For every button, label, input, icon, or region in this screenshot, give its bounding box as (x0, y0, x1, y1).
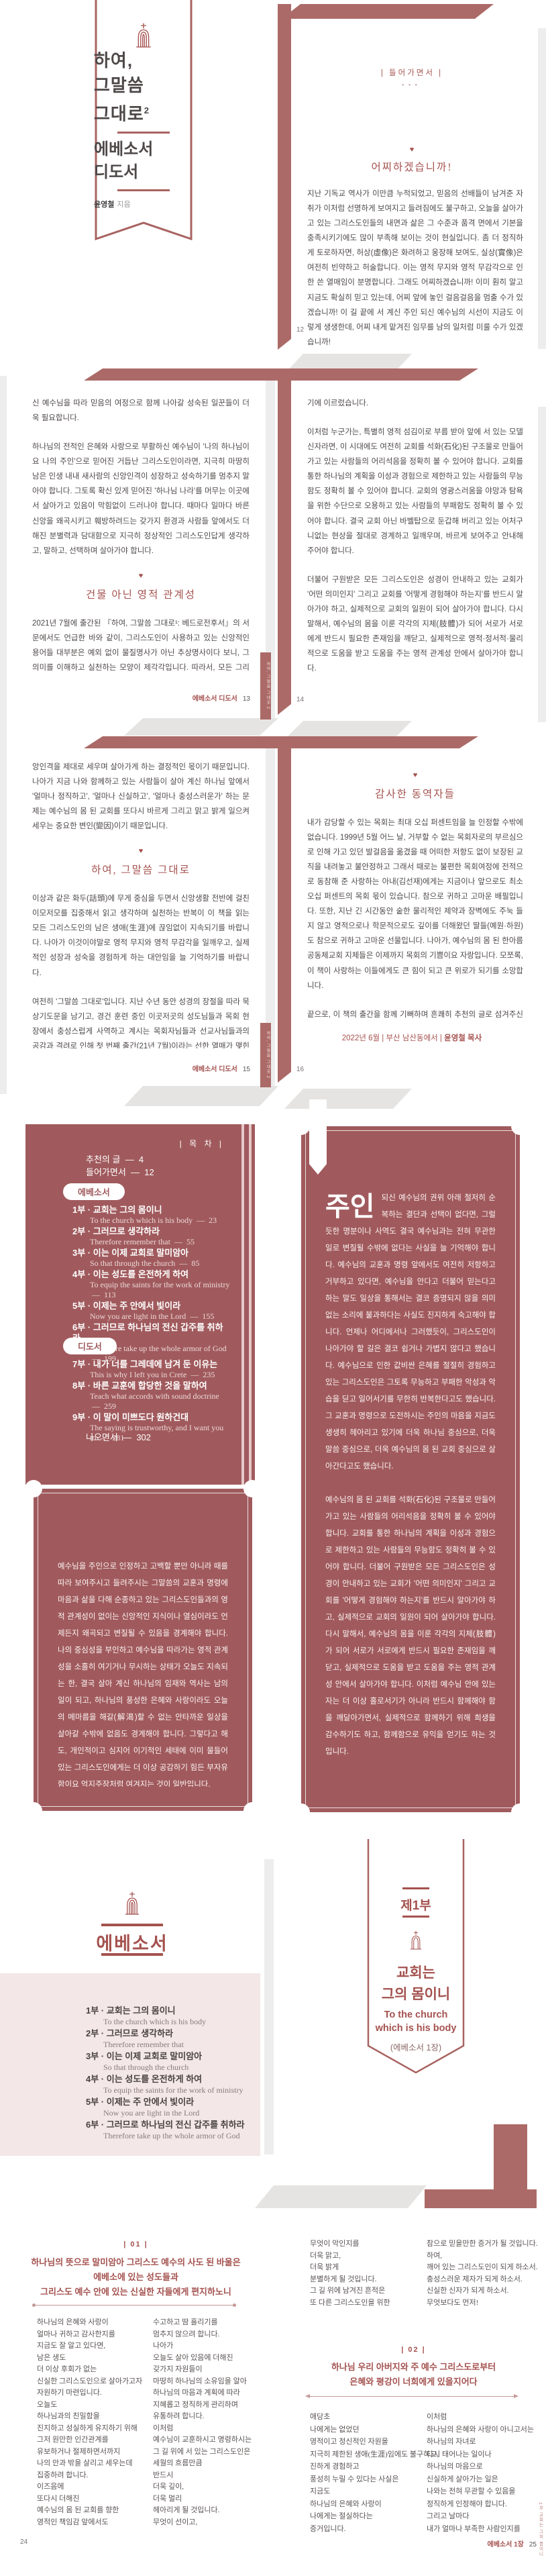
paragraph: 이상과 같은 화두(話頭)에 무게 중심을 두면서 신앙생활 전반에 걸친 이모… (32, 891, 250, 980)
meditation-line: 하나님의 자녀로 (427, 2436, 534, 2448)
verse-divider-arrow (308, 2396, 516, 2397)
toc-front-item: 들어가면서 — 12 (86, 1167, 154, 1178)
meditation-line: 집중하려 합니다. (37, 2470, 142, 2482)
title-bar (101, 1924, 163, 1926)
signature-name: 윤영철 목사 (444, 1034, 482, 1042)
page-number: 12 (296, 326, 304, 334)
toc-entry-en: This is why I left you in Crete — 235 (72, 1370, 231, 1380)
meditation-line: 나와는 전혀 무관할 수 있음을 (427, 2485, 534, 2498)
meditation-line: 얼마나 귀하고 감사한지를 (37, 2329, 142, 2341)
toc-front-item: 추천의 글 — 4 (86, 1154, 154, 1165)
heart-ornament-icon (32, 848, 250, 855)
verse-line: 은혜와 평강이 너희에게 있을지어다 (294, 2375, 533, 2389)
meditation-line: 지금도 잘 알고 있다면, (37, 2340, 142, 2352)
paragraph: 하나님의 전적인 은혜와 사랑으로 부활하신 예수님이 '나의 하나님이요 나의… (32, 440, 250, 558)
toc-entry-ko: 2부 · 그러므로 생각하라 (72, 1226, 231, 1237)
meditation-line: 지혜롭고 정직하게 관리하며 (153, 2399, 252, 2412)
part-title: 교회는그의 몸이니 (367, 1963, 465, 2005)
toc-entry-en: To equip the saints for the work of mini… (72, 1280, 231, 1300)
meditation-line: 이즈음에 (37, 2481, 142, 2493)
section-label: | 들어가면서 | (278, 67, 546, 78)
paragraph: 기에 이르렀습니다. (307, 396, 523, 411)
title-line: 그대로2 (94, 98, 193, 127)
excerpt-text: 주인되신 예수님의 권위 아래 철저히 순복하는 결단과 선택이 없다면, 그럴… (325, 1190, 496, 1781)
toc-entry-ko: 9부 · 이 말이 미쁘도다 원하건대 (72, 1412, 231, 1423)
chapter-side-tab: 하여, 그말씀 그대로 2 (260, 1023, 271, 1087)
corner-band (425, 2189, 537, 2208)
corner-scoop (25, 1480, 42, 1497)
meditation-line: 나에게는 절실하다는 (310, 2510, 439, 2523)
running-footer: 에베소서 디도서13 (193, 693, 250, 703)
verse-line: 하나님의 뜻으로 말미암아 그리스도 예수의 사도 된 바울은 (20, 2255, 252, 2270)
chapter-side-tab: 하여, 그말씀 그대로 2 (260, 652, 271, 720)
toc-outro: 나오면서 — 302 (86, 1430, 151, 1443)
meditation-line: 그저 원만한 인간관계를 (37, 2434, 142, 2446)
page-number: 25 (529, 2541, 537, 2548)
lead-word: 주인 (325, 1191, 375, 1222)
meditation-line: 더욱 깊이, (153, 2481, 252, 2493)
footer-title: 에베소서 디도서 (193, 695, 237, 703)
paragraph: 내가 감당할 수 있는 목회는 최대 오십 퍼센트임을 늘 인정할 수밖에 없습… (307, 815, 523, 993)
section-heading: 하여, 그말씀 그대로 (91, 864, 190, 876)
church-icon (0, 1891, 264, 1919)
footer-title: 에베소서 1장 (488, 2541, 524, 2548)
title-line: 하여, (94, 48, 193, 73)
book-preview-canvas: 하여, 그말씀 그대로2 에베소서 디도서 윤영철지음 12 | 들어가면서 |… (0, 0, 546, 2576)
meditation-line: 나아가 (153, 2340, 252, 2352)
page-12-intro: 12 | 들어가면서 | 어찌하겠습니까! 지난 기독교 역사가 이만큼 누적되… (278, 0, 546, 366)
section-heading: 어찌하겠습니까! (372, 162, 453, 173)
meditation-line: 신실한 그리스도인으로 살아가고자 (37, 2376, 142, 2388)
meditation-line: 헤아리게 될 것입니다. (153, 2505, 252, 2517)
paragraph: 여전히 '그말씀 그대로'입니다. 지난 수년 동안 성경의 장절을 따라 묵상… (32, 995, 250, 1048)
label-bar (402, 1887, 429, 1889)
meditation-line: 하나님과의 친밀함을 (37, 2411, 142, 2423)
meditation-line: 나에게는 없었던 (310, 2424, 439, 2436)
meditation-line: 무엇이 선이고, (153, 2517, 252, 2529)
page-13: 신 예수님을 따라 믿음의 여정으로 함께 나아갈 성숙된 일꾼들이 더욱 필요… (0, 368, 273, 736)
toc-section-badge-ephesians: 에베소서 (63, 1183, 125, 1200)
meditation-line: 예수님의 몸 된 교회를 향한 (37, 2505, 142, 2517)
author-suffix: 지음 (117, 201, 130, 209)
toc-page: | 목 차 | 추천의 글 — 4 들어가면서 — 12 에베소서 1부 · 교… (25, 1124, 241, 1485)
toc-edge-stripes (241, 1124, 255, 1485)
scripture-ref: (에베소서 1장) (367, 2040, 465, 2053)
page-number: 13 (243, 695, 250, 703)
heading-block: 건물 아닌 영적 관계성 (32, 573, 250, 605)
heart-ornament-icon (278, 146, 546, 154)
running-footer: 에베소서 1장25 (488, 2538, 537, 2548)
meditation-line: 다시 태어나는 일이나 (427, 2448, 534, 2461)
meditation-line: 예수님이 교훈하시고 명령하시는 (153, 2434, 252, 2446)
corner-scoop (511, 1118, 529, 1135)
meditation-line: 증거입니다. (310, 2523, 439, 2536)
page-number: 16 (296, 1066, 304, 1073)
paragraph: 신 예수님을 따라 믿음의 여정으로 함께 나아갈 성숙된 일꾼들이 더욱 필요… (32, 396, 250, 426)
excerpt-card-master: 주인되신 예수님의 권위 아래 철저히 순복하는 결단과 선택이 없다면, 그럴… (301, 1126, 520, 1812)
gutter-band (278, 736, 291, 1083)
paragraph: 지난 기독교 역사가 이만큼 누적되었고, 믿음의 선배들이 남겨준 자취가 이… (307, 187, 523, 350)
toc-entry-ko: 8부 · 바른 교훈에 합당한 것을 말하여 (72, 1381, 231, 1391)
title-divider (117, 189, 170, 191)
subtitle-line: 디도서 (94, 161, 193, 184)
body-text: 지난 기독교 역사가 이만큼 누적되었고, 믿음의 선배들이 남겨준 자취가 이… (307, 187, 523, 358)
paragraph: 더불어 구원받은 모든 그리스도인은 성경이 안내하고 있는 교회가 '어떤 의… (307, 573, 523, 677)
verse-divider (34, 2305, 235, 2306)
meditation-line: 오늘도 살아 있음에 더해진 (153, 2352, 252, 2365)
ephesians-divider-page: 에베소서 1부 · 교회는 그의 몸이니To the church which … (0, 1859, 264, 2235)
running-footer: 에베소서 디도서15 (193, 1063, 250, 1073)
heart-ornament-icon (32, 573, 250, 580)
verse-text: 하나님 우리 아버지와 주 예수 그리스도로부터은혜와 평강이 너희에게 있을지… (294, 2360, 533, 2389)
part-entry: 6부 · 그러므로 하나님의 전신 갑주를 취하라Therefore take … (86, 2120, 245, 2142)
part-label: 제1부 (367, 1895, 465, 1914)
verse-number-label: | 02 | (294, 2346, 533, 2354)
paragraph: 끝으로, 이 책의 출간을 함께 기뻐하며 흔쾌히 추천의 글로 섬겨주신 김주… (307, 1007, 523, 1023)
church-icon (367, 1930, 465, 1954)
excerpt-card-relationship: 예수님을 주인으로 인정하고 고백할 뿐만 아니라 때를 따라 보여주시고 들려… (34, 1489, 252, 1811)
meditation-line: 나의 안과 밖을 살리고 세우는데 (37, 2458, 142, 2470)
page-number: 14 (296, 696, 304, 703)
meditation-line: 이처럼 (153, 2423, 252, 2435)
cover-page: 하여, 그말씀 그대로2 에베소서 디도서 윤영철지음 (0, 0, 268, 366)
body-text: 앙인격을 제대로 세우며 살아가게 하는 결정적인 몫이기 때문입니다. 나아가… (32, 760, 250, 1048)
footer-title: 에베소서 디도서 (193, 1066, 237, 1073)
subtitle-line: 에베소서 (94, 138, 193, 161)
gutter-band (278, 368, 291, 715)
meditation-line: 하나님의 은혜와 사랑이 (310, 2498, 439, 2511)
toc-front-items: 추천의 글 — 4 들어가면서 — 12 (86, 1154, 154, 1179)
meditation-col1: 하나님의 은혜와 사랑이얼마나 귀하고 감사한지를지금도 잘 알고 있다면,남은… (37, 2317, 142, 2528)
meditation-line: 애당초 (310, 2411, 439, 2424)
meditation-col1: 애당초나에게는 없었던영적이고 정신적인 자원을지극히 제한된 생애(生涯)임에… (310, 2411, 439, 2535)
heading-block: 하여, 그말씀 그대로 (32, 848, 250, 881)
meditation-line: 유보하거나 절제하면서까지 (37, 2446, 142, 2459)
meditation-line: 그 길 위에 서 있는 그리스도인은 (153, 2446, 252, 2459)
meditation-line: 진지하고 성실하게 유지하기 위해 (37, 2423, 142, 2435)
meditation-line: 내가 얼마나 부족한 사람인지를 (427, 2523, 534, 2536)
part1-title-page: 제1부 교회는그의 몸이니 To the churchwhich is his … (278, 1839, 546, 2240)
page-15: 앙인격을 제대로 세우며 살아가게 하는 결정적인 몫이기 때문입니다. 나아가… (0, 736, 273, 1103)
meditation-line: 남은 생도 (37, 2352, 142, 2365)
verse-line: 그리스도 예수 안에 있는 신실한 자들에게 편지하노니 (20, 2285, 252, 2299)
meditation-col2: 이처럼하나님의 은혜와 사랑이 아니고서는하나님의 자녀로다시 태어나는 일이나… (427, 2411, 534, 2535)
toc-section-badge-titus: 디도서 (63, 1338, 117, 1354)
corner-scoop (25, 1802, 42, 1820)
church-icon (94, 23, 193, 52)
toc-entry-ko: 1부 · 교회는 그의 몸이니 (72, 1205, 231, 1216)
signature-place: 2022년 6월 | 부산 남산동에서 | (342, 1034, 442, 1042)
part-title-en: To the churchwhich is his body (367, 2008, 465, 2035)
meditation-line: 세월의 흐름만큼 (153, 2458, 252, 2470)
part-entry: 3부 · 이는 이제 교회로 말미암아So that through the c… (86, 2051, 245, 2073)
body-text: 감사한 동역자들 내가 감당할 수 있는 목회는 최대 오십 퍼센트임을 늘 인… (307, 768, 523, 1023)
verse-line: 하나님 우리 아버지와 주 예수 그리스도로부터 (294, 2360, 533, 2375)
corner-scoop (243, 1802, 261, 1820)
meditation-line: 하나님의 마음과 계획에 따라 (153, 2387, 252, 2399)
body-text: 신 예수님을 따라 믿음의 여정으로 함께 나아갈 성숙된 일꾼들이 더욱 필요… (32, 396, 250, 678)
meditation-line: 영적이고 정신적인 자원을 (310, 2436, 439, 2448)
heading-block: 어찌하겠습니까! (278, 146, 546, 174)
title-superscript: 2 (144, 105, 150, 115)
author-credit: 윤영철지음 (94, 199, 193, 209)
corner-scoop (292, 1118, 310, 1135)
label-bar (402, 1916, 429, 1918)
title-bar (101, 1953, 163, 1956)
part-entry: 4부 · 이는 성도를 온전하게 하여To equip the saints f… (86, 2074, 245, 2096)
toc-entry-ko: 3부 · 이는 이제 교회로 말미암아 (72, 1248, 231, 1258)
meditation-line: 수고하고 땀 흘리기를 (153, 2317, 252, 2329)
meditation-line: 그리고 날마다 (427, 2510, 534, 2523)
part-ribbon: 제1부 교회는그의 몸이니 To the churchwhich is his … (367, 1839, 465, 2075)
part-section-title: 에베소서 (0, 1929, 264, 1955)
heading-block: 감사한 동역자들 (307, 772, 523, 805)
meditation-line: 하나님의 은혜와 사랑이 (37, 2317, 142, 2329)
page-24-meditation: | 01 | 하나님의 뜻으로 말미암아 그리스도 예수의 사도 된 바울은에베… (0, 2235, 273, 2576)
meditation-line: 오늘도 (37, 2399, 142, 2412)
part-entry: 5부 · 이제는 주 안에서 빛이라Now you are light in t… (86, 2097, 245, 2119)
corner-band (494, 2124, 527, 2189)
part-entry: 2부 · 그러므로 생각하라Therefore remember that (86, 2028, 245, 2050)
meditation-line: 하나님의 은혜와 사랑이 아니고서는 (427, 2424, 534, 2436)
meditation-line: 더 이상 후회가 없는 (37, 2364, 142, 2376)
meditation-line: 지금도 (310, 2485, 439, 2498)
book-title: 하여, 그말씀 그대로2 (94, 48, 193, 127)
meditation-line: 풍성히 누릴 수 있다는 사실은 (310, 2473, 439, 2486)
meditation-line: 자원하기 마련입니다. (37, 2387, 142, 2399)
meditation-line: 반드시 (153, 2470, 252, 2482)
meditation-line: 하나님의 마음으로 (427, 2461, 534, 2473)
meditation-line: 진하게 경험하고 (310, 2461, 439, 2473)
meditation-line: 영적인 책임감 앞에서도 (37, 2517, 142, 2529)
verse-line: 에베소에 있는 성도들과 (20, 2270, 252, 2285)
meditation-line: 이처럼 (427, 2411, 534, 2424)
corner-scoop (292, 1803, 310, 1821)
meditation-col2: 수고하고 땀 흘리기를멈추지 않으려 합니다.나아가오늘도 살아 있음에 더해진… (153, 2317, 252, 2528)
toc-entry-en: To the church which is his body — 23 (72, 1216, 231, 1226)
paragraph: 앙인격을 제대로 세우며 살아가게 하는 결정적인 몫이기 때문입니다. 나아가… (32, 760, 250, 834)
book-subtitle: 에베소서 디도서 (94, 138, 193, 184)
meditation-line: 멈추지 않으려 합니다. (153, 2329, 252, 2341)
verse-text: 하나님의 뜻으로 말미암아 그리스도 예수의 사도 된 바울은에베소에 있는 성… (20, 2255, 252, 2299)
part-entry: 1부 · 교회는 그의 몸이니To the church which is hi… (86, 2005, 245, 2028)
gutter-strip (264, 1859, 274, 2154)
meditation-line: 더욱 멀리 (153, 2493, 252, 2506)
paragraph: 이처럼 누군가는, 특별히 영적 섬김이로 부름 받아 앞에 서 있는 모델 신… (307, 425, 523, 558)
corner-scoop (243, 1480, 261, 1497)
paragraph: 주인되신 예수님의 권위 아래 철저히 순복하는 결단과 선택이 없다면, 그럴… (325, 1190, 496, 1475)
author-name: 윤영철 (94, 201, 114, 209)
toc-entry-ko: 7부 · 내가 너를 그레데에 남겨 둔 이유는 (72, 1359, 231, 1370)
title-divider (117, 132, 170, 134)
title-line: 그말씀 (94, 73, 193, 98)
page-number: 24 (20, 2538, 28, 2546)
meditation-line: 정직하게 인정해야 합니다. (427, 2498, 534, 2511)
dots-ornament-icon (278, 82, 546, 88)
cover-ribbon: 하여, 그말씀 그대로2 에베소서 디도서 윤영철지음 (94, 0, 193, 254)
parts-list: 1부 · 교회는 그의 몸이니To the church which is hi… (86, 2005, 245, 2142)
signature-line: 2022년 6월 | 부산 남산동에서 | 윤영철 목사 (278, 1032, 546, 1043)
toc-header: | 목 차 | (180, 1138, 224, 1149)
toc-entry-ko: 5부 · 이제는 주 안에서 빛이라 (72, 1301, 231, 1311)
section-heading: 건물 아닌 영적 관계성 (86, 589, 196, 601)
toc-entry-ko: 4부 · 이는 성도를 온전하게 하여 (72, 1269, 231, 1280)
page-16: 16 감사한 동역자들 내가 감당할 수 있는 목회는 최대 오십 퍼센트임을 … (278, 736, 546, 1103)
meditation-line: 지극히 제한된 생애(生涯)임에도 불구하고, (310, 2448, 439, 2461)
toc-entry-en: Teach what accords with sound doctrine —… (72, 1391, 231, 1411)
paragraph: 예수님의 몸 된 교회를 석화(石化)된 구조물로 만들어가고 있는 사람들의 … (325, 1492, 496, 1761)
meditation-line: 유통하려 합니다. (153, 2411, 252, 2423)
toc-entry-en: So that through the church — 85 (72, 1258, 231, 1269)
bookmark-ribbon-icon (309, 1099, 327, 1175)
meditation-line: 갖가지 자원들이 (153, 2364, 252, 2376)
excerpt-text: 예수님을 주인으로 인정하고 고백할 뿐만 아니라 때를 따라 보여주시고 들려… (58, 1558, 228, 1787)
verse-number-label: | 01 | (20, 2240, 252, 2248)
meditation-line: 마땅히 하나님의 소유임을 알아 (153, 2376, 252, 2388)
paragraph: 예수님을 주인으로 인정하고 고백할 뿐만 아니라 때를 따라 보여주시고 들려… (58, 1558, 228, 1787)
meditation-line: 또다시 더해진 (37, 2493, 142, 2506)
page-14: 14 기에 이르렀습니다. 이처럼 누군가는, 특별히 영적 섬김이로 부름 받… (278, 368, 546, 736)
chapter-side-tab: 1부 교회는 그의 몸이니 (537, 2502, 543, 2557)
page-25-meditation: 무엇이 악인지를더욱 맑고,더욱 밝게분별하게 될 것입니다.그 길 위에 남겨… (278, 2235, 546, 2576)
toc-entry-en: Now you are light in the Lord — 155 (72, 1311, 231, 1322)
body-text: 기에 이르렀습니다. 이처럼 누군가는, 특별히 영적 섬김이로 부름 받아 앞… (307, 396, 523, 685)
paragraph: 2021년 7월에 출간된 『하여, 그말씀 그대로¹: 베드로전후서』의 서문… (32, 616, 250, 678)
page-number: 15 (243, 1066, 250, 1073)
section-heading: 감사한 동역자들 (375, 789, 455, 800)
corner-scoop (511, 1803, 529, 1821)
toc-entry-en: Therefore remember that — 55 (72, 1237, 231, 1247)
meditation-line: 신실하게 살아가는 일은 (427, 2473, 534, 2486)
heart-ornament-icon (307, 772, 523, 779)
